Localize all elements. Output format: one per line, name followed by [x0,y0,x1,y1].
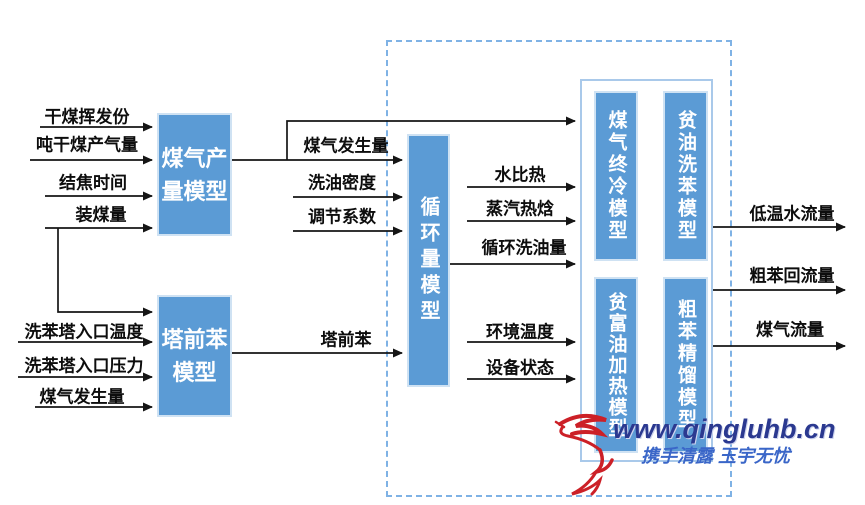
label-washer-inlet-pressure: 洗苯塔入口压力 [25,352,144,377]
label-water-specific-heat: 水比热 [495,161,546,186]
label-coal-charge: 装煤量 [76,201,127,226]
node-gas-final-cooling-model: 煤气终冷模型 [594,91,638,261]
diagram-canvas: 煤气产量模型 塔前苯模型 循环量模型 煤气终冷模型 贫油洗苯模型 贫富油加热模型… [0,0,865,505]
label-gas-generation-mid: 煤气发生量 [304,132,389,157]
node-lean-oil-benzene-washing-model: 贫油洗苯模型 [663,91,708,261]
label-gas-yield-per-ton: 吨干煤产气量 [36,131,138,156]
watermark-tagline: 携手清露 玉宇无忧 [641,442,790,468]
arrow-coal-charge-branch [58,228,152,312]
label-dry-coal-volatile: 干煤挥发份 [45,103,130,128]
label-ambient-temperature: 环境温度 [486,318,554,343]
watermark-url: www.qingluhb.cn [613,414,835,445]
label-wash-oil-density: 洗油密度 [308,169,376,194]
label-crude-benzene-reflux: 粗苯回流量 [750,262,835,287]
label-gas-flow: 煤气流量 [756,316,824,341]
label-circulating-wash-oil: 循环洗油量 [482,234,567,259]
label-tower-front-benzene: 塔前苯 [321,326,372,351]
label-adjustment-coefficient: 调节系数 [308,203,376,228]
node-gas-production-model: 煤气产量模型 [157,113,232,236]
label-equipment-status: 设备状态 [486,354,554,379]
node-tower-front-benzene-model: 塔前苯模型 [157,295,232,417]
label-low-temp-water-flow: 低温水流量 [750,200,835,225]
label-coking-time: 结焦时间 [59,169,127,194]
label-washer-inlet-temperature: 洗苯塔入口温度 [25,318,144,343]
label-gas-generation-input: 煤气发生量 [40,383,125,408]
node-circulation-model: 循环量模型 [407,134,450,387]
label-steam-enthalpy: 蒸汽热焓 [486,195,554,220]
